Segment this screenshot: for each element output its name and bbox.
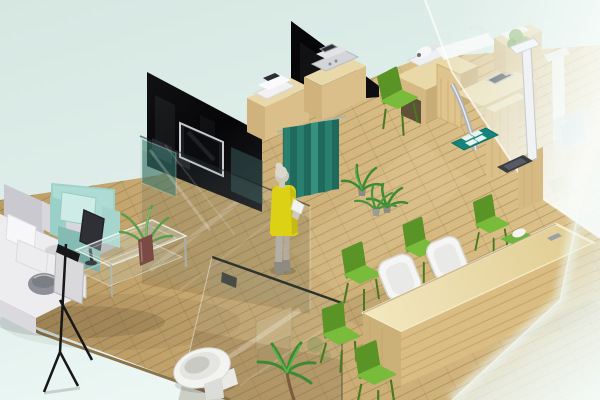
- scene-canvas: [0, 0, 600, 400]
- isometric-interior-render: [0, 0, 600, 400]
